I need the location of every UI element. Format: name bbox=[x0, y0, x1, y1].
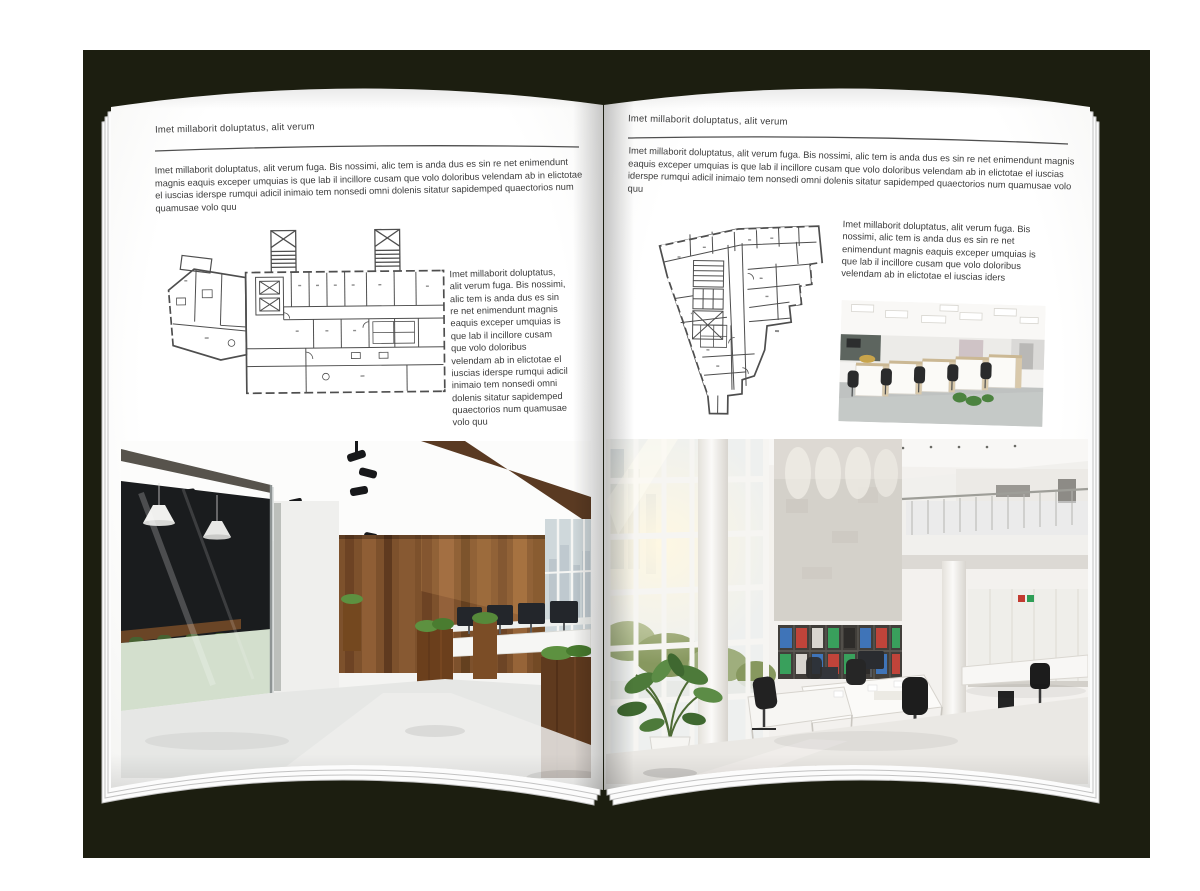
mezzanine bbox=[902, 461, 1088, 569]
left-page: Imet millaborit doluptatus, alit verum I… bbox=[111, 77, 603, 790]
left-page-header: Imet millaborit doluptatus, alit verum bbox=[155, 121, 315, 135]
office-photo-cubicles bbox=[838, 300, 1045, 427]
glass-railing bbox=[906, 501, 1088, 535]
left-header-rule bbox=[155, 142, 579, 154]
magazine-spread-mockup: Imet millaborit doluptatus, alit verum I… bbox=[0, 0, 1200, 891]
right-room-partitions bbox=[747, 241, 810, 322]
monitor-2 bbox=[820, 667, 838, 679]
column bbox=[698, 439, 728, 757]
right-intro-paragraph: Imet millaborit doluptatus, alit verum f… bbox=[627, 145, 1074, 206]
left-floor-plan-drawing bbox=[156, 225, 450, 412]
column-2 bbox=[942, 561, 966, 723]
first-aid-sign bbox=[1018, 595, 1025, 602]
elevator-core bbox=[256, 277, 284, 315]
left-intro-paragraph: Imet millaborit doluptatus, alit verum f… bbox=[155, 155, 588, 215]
room-partitions bbox=[246, 271, 445, 394]
concrete-wall bbox=[774, 439, 902, 621]
glass-meeting-room bbox=[121, 481, 273, 711]
white-partition bbox=[274, 501, 339, 693]
left-plan-caption: Imet millaborit doluptatus, alit verum f… bbox=[449, 266, 570, 429]
stair-towers bbox=[271, 229, 400, 272]
office-photo-wood-interior bbox=[121, 441, 591, 778]
right-plan-caption: Imet millaborit doluptatus, alit verum f… bbox=[841, 218, 1053, 286]
wing-partitions bbox=[172, 270, 246, 347]
right-floor-plan-drawing bbox=[645, 216, 840, 425]
right-page-header: Imet millaborit doluptatus, alit verum bbox=[628, 113, 788, 127]
tv-screen bbox=[846, 338, 860, 347]
vent-grille bbox=[996, 485, 1030, 497]
office-photo-atrium bbox=[606, 439, 1088, 784]
exit-sign bbox=[1027, 595, 1034, 602]
drawing-sheet bbox=[874, 691, 906, 700]
stair-elevator-core bbox=[692, 261, 723, 340]
right-page: Imet millaborit doluptatus, alit verum I… bbox=[604, 77, 1090, 790]
